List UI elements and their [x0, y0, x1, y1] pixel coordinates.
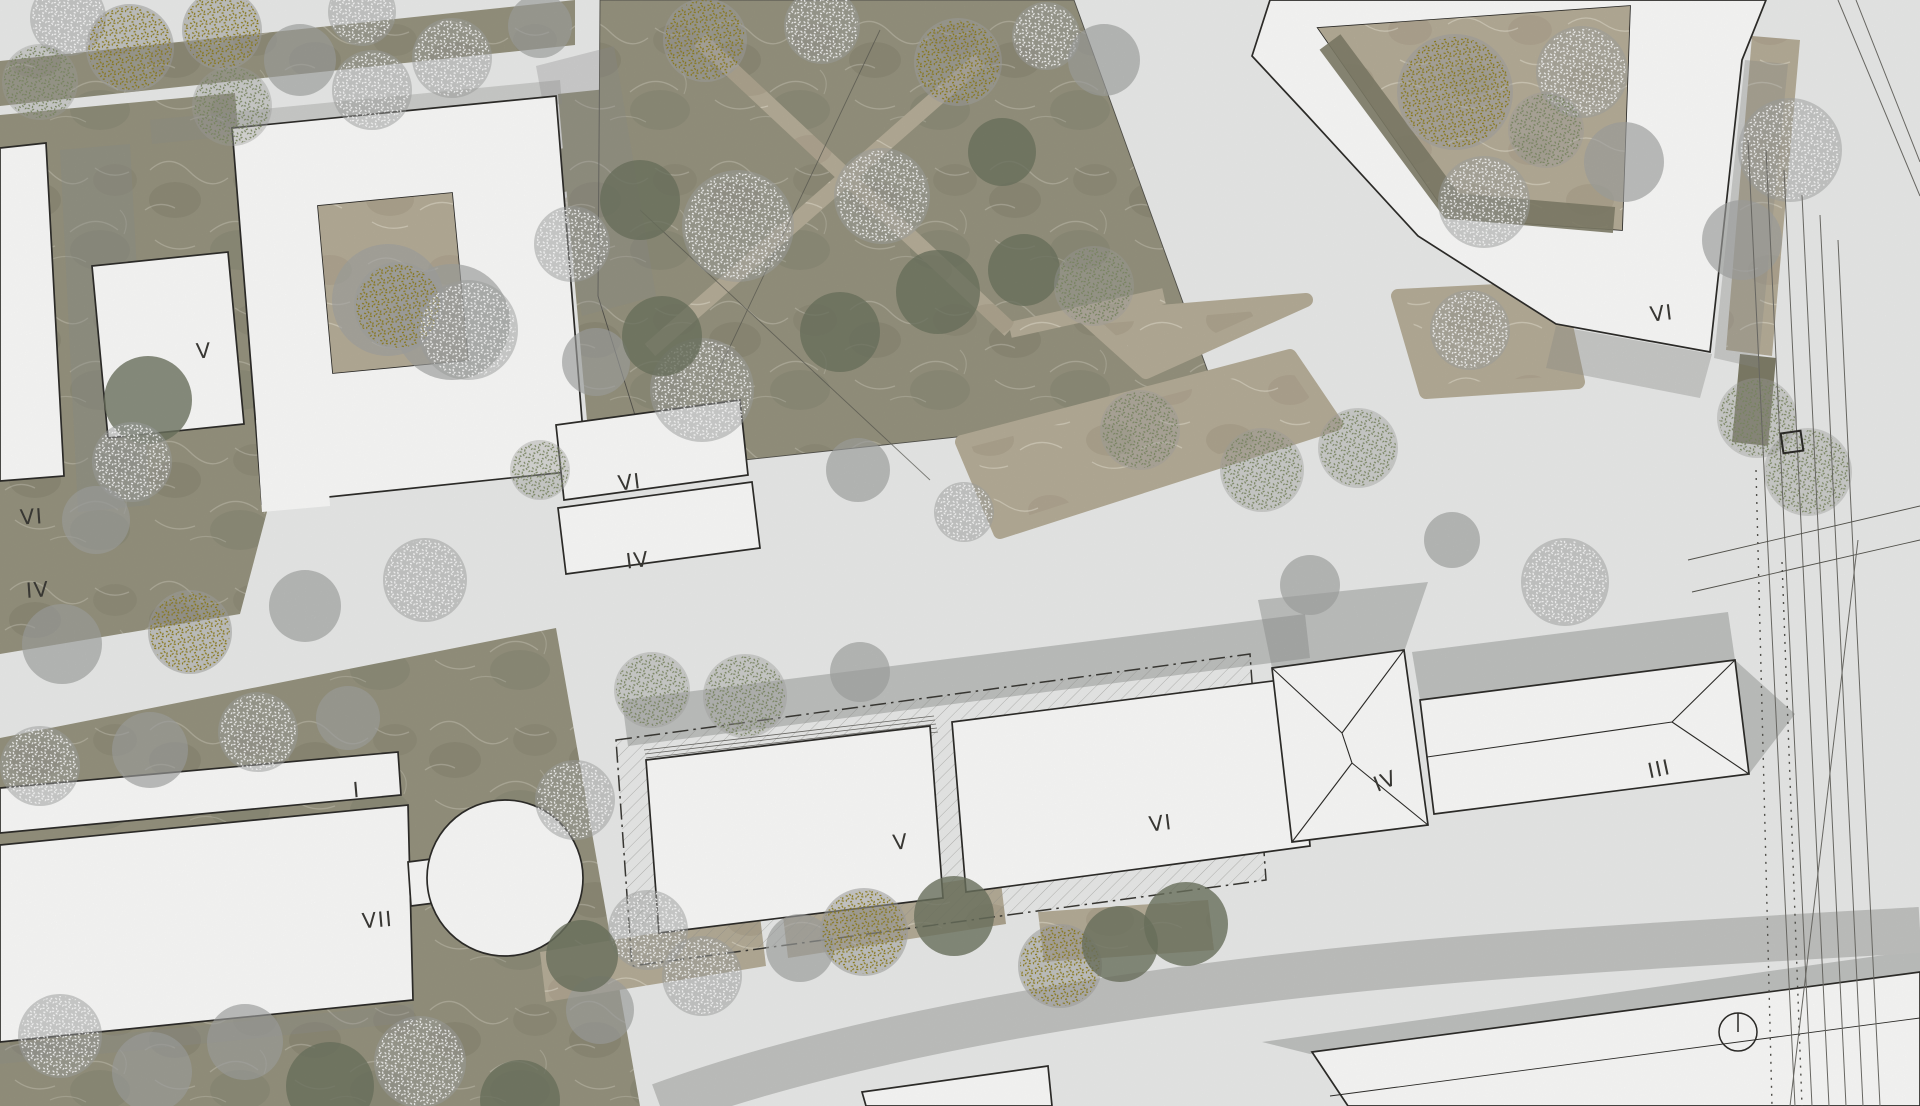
site-plan-page: V VI IV VI IV I VII V VI IV III VI	[0, 0, 1920, 1106]
site-plan-canvas: V VI IV VI IV I VII V VI IV III VI	[0, 0, 1920, 1106]
paper-grain-overlay	[0, 0, 1920, 1106]
